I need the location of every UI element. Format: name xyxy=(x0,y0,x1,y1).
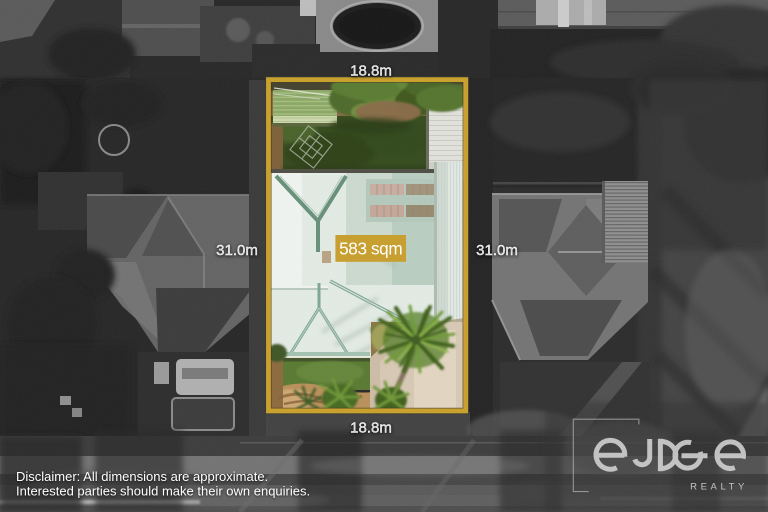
svg-text:Interested parties should make: Interested parties should make their own… xyxy=(16,483,310,498)
svg-text:18.8m: 18.8m xyxy=(350,63,392,80)
svg-text:18.8m: 18.8m xyxy=(350,420,392,437)
svg-text:583 sqm: 583 sqm xyxy=(339,239,402,259)
svg-text:REALTY: REALTY xyxy=(690,482,748,493)
svg-text:31.0m: 31.0m xyxy=(216,242,258,259)
svg-text:31.0m: 31.0m xyxy=(476,242,518,259)
svg-text:Disclaimer: All dimensions are: Disclaimer: All dimensions are approxima… xyxy=(16,469,268,484)
